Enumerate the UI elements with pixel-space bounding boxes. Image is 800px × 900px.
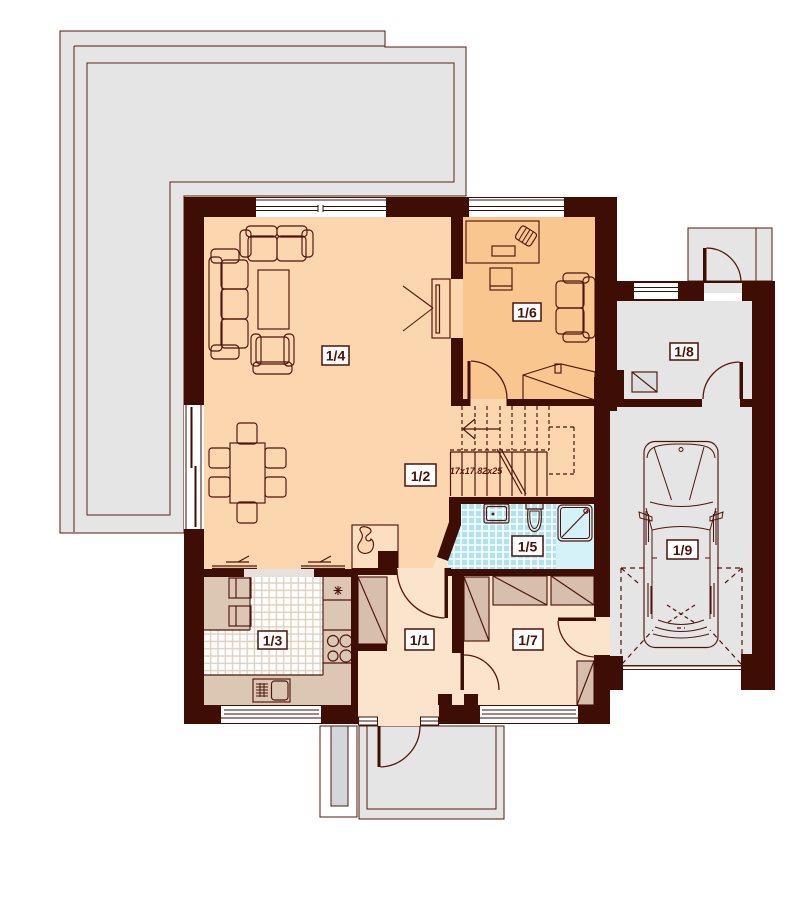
svg-text:1/3: 1/3 (263, 633, 283, 649)
svg-text:1/6: 1/6 (517, 305, 537, 321)
svg-text:1/8: 1/8 (674, 344, 694, 360)
svg-text:1/9: 1/9 (673, 542, 693, 558)
svg-text:1/5: 1/5 (518, 539, 538, 555)
svg-text:1/4: 1/4 (326, 348, 346, 364)
svg-text:17x17.82x25: 17x17.82x25 (450, 466, 504, 476)
svg-text:1/7: 1/7 (518, 632, 538, 648)
svg-text:1/2: 1/2 (411, 468, 431, 484)
svg-text:1/1: 1/1 (410, 632, 430, 648)
